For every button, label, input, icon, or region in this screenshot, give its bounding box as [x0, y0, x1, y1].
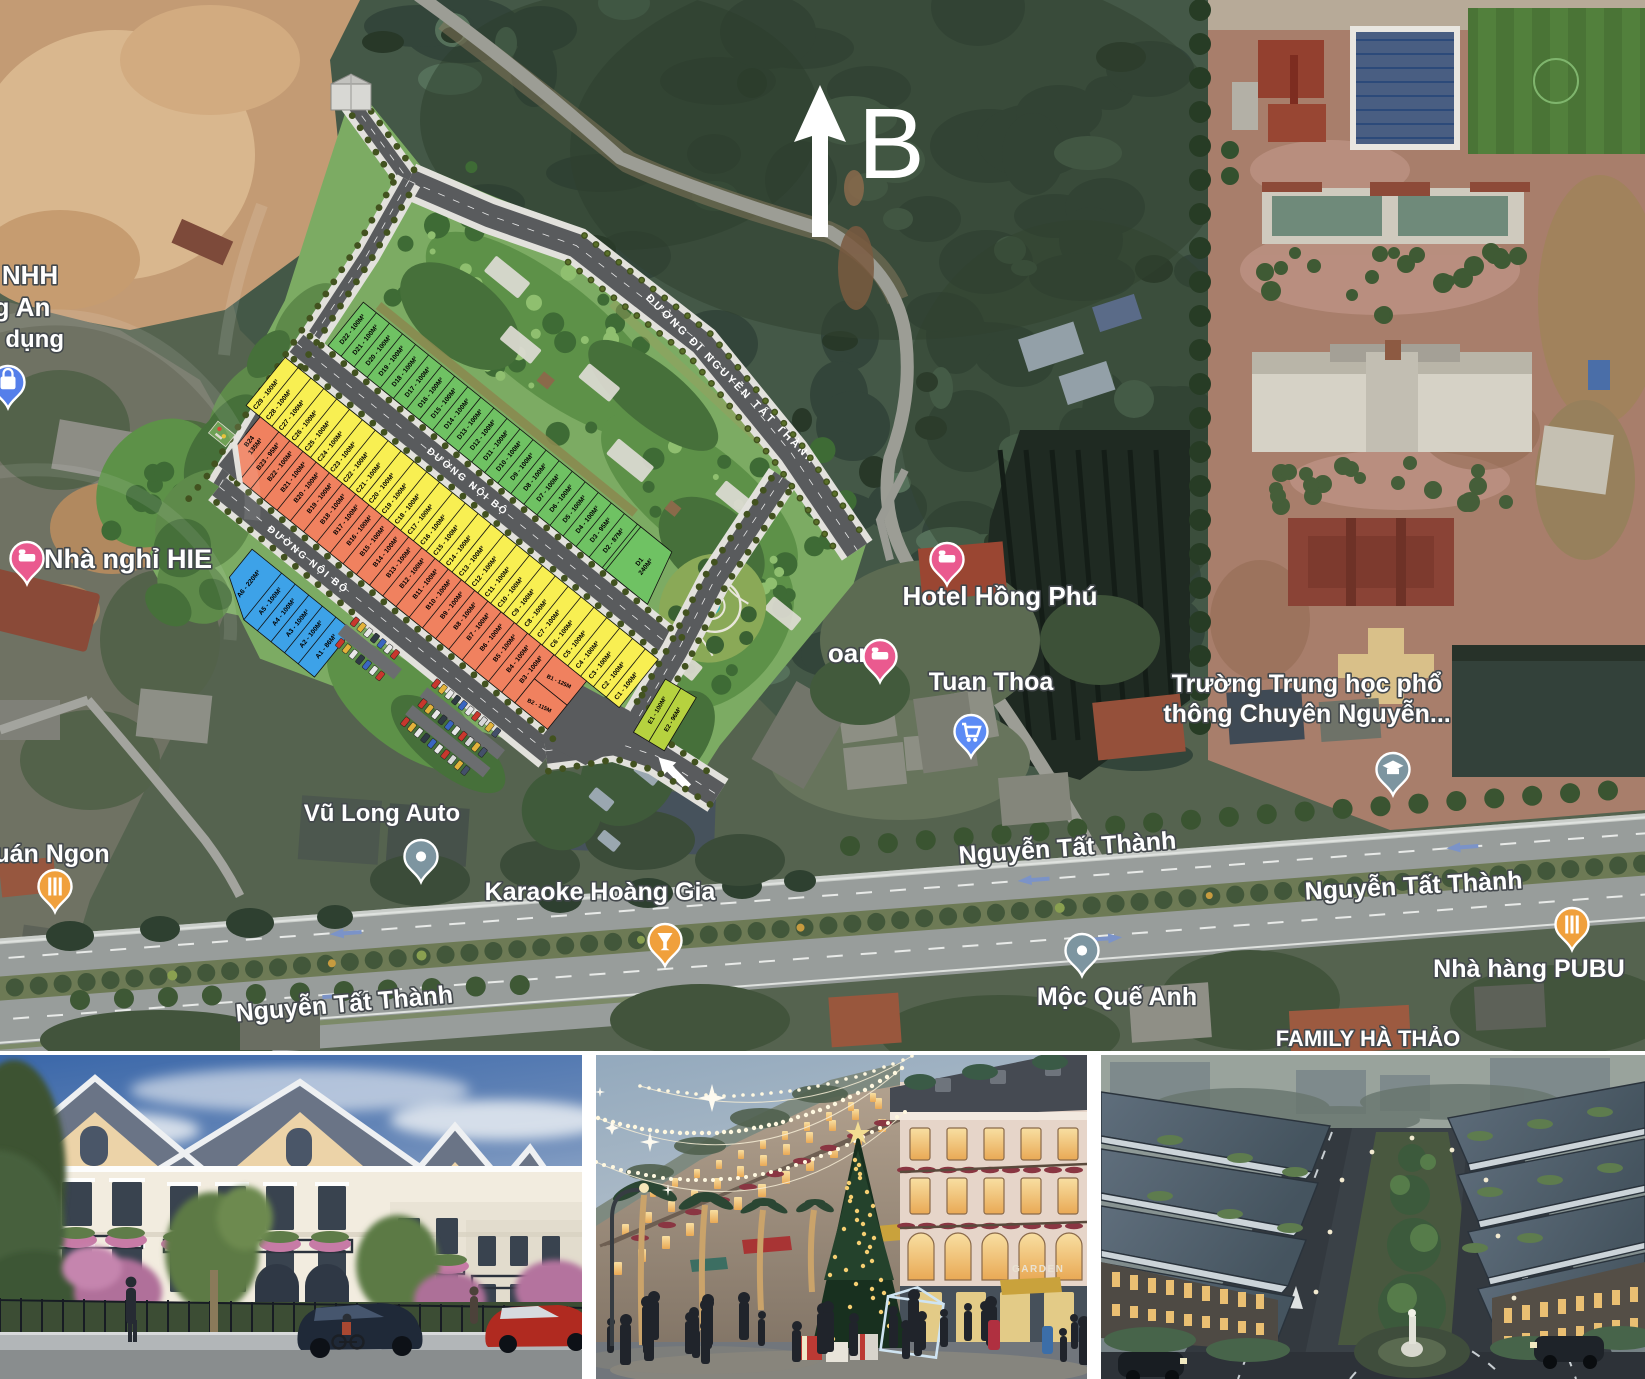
- svg-text:Vũ Long Auto: Vũ Long Auto: [304, 800, 460, 827]
- svg-text:B: B: [858, 88, 925, 200]
- svg-text:Hotel Hồng Phú: Hotel Hồng Phú: [903, 581, 1098, 611]
- svg-text:Trường Trung học phổ: Trường Trung học phổ: [1172, 670, 1443, 698]
- svg-text:g An: g An: [0, 292, 50, 322]
- svg-text:Nhà hàng PUBU: Nhà hàng PUBU: [1433, 955, 1625, 983]
- svg-text:Karaoke Hoàng Gia: Karaoke Hoàng Gia: [485, 878, 717, 906]
- svg-text:FAMILY HÀ THẢO: FAMILY HÀ THẢO: [1276, 1026, 1461, 1051]
- svg-text:Tuan Thoa: Tuan Thoa: [929, 668, 1055, 696]
- svg-text:Mộc Quế Anh: Mộc Quế Anh: [1037, 983, 1197, 1011]
- svg-text:GARDEN: GARDEN: [1012, 1264, 1064, 1275]
- svg-text:NHH: NHH: [2, 260, 58, 290]
- svg-text:uán Ngon: uán Ngon: [0, 840, 110, 868]
- svg-text:ı dụng: ı dụng: [0, 326, 64, 353]
- svg-text:thông Chuyên Nguyễn...: thông Chuyên Nguyễn...: [1163, 698, 1451, 728]
- svg-text:Nhà nghỉ HIE: Nhà nghỉ HIE: [44, 544, 212, 574]
